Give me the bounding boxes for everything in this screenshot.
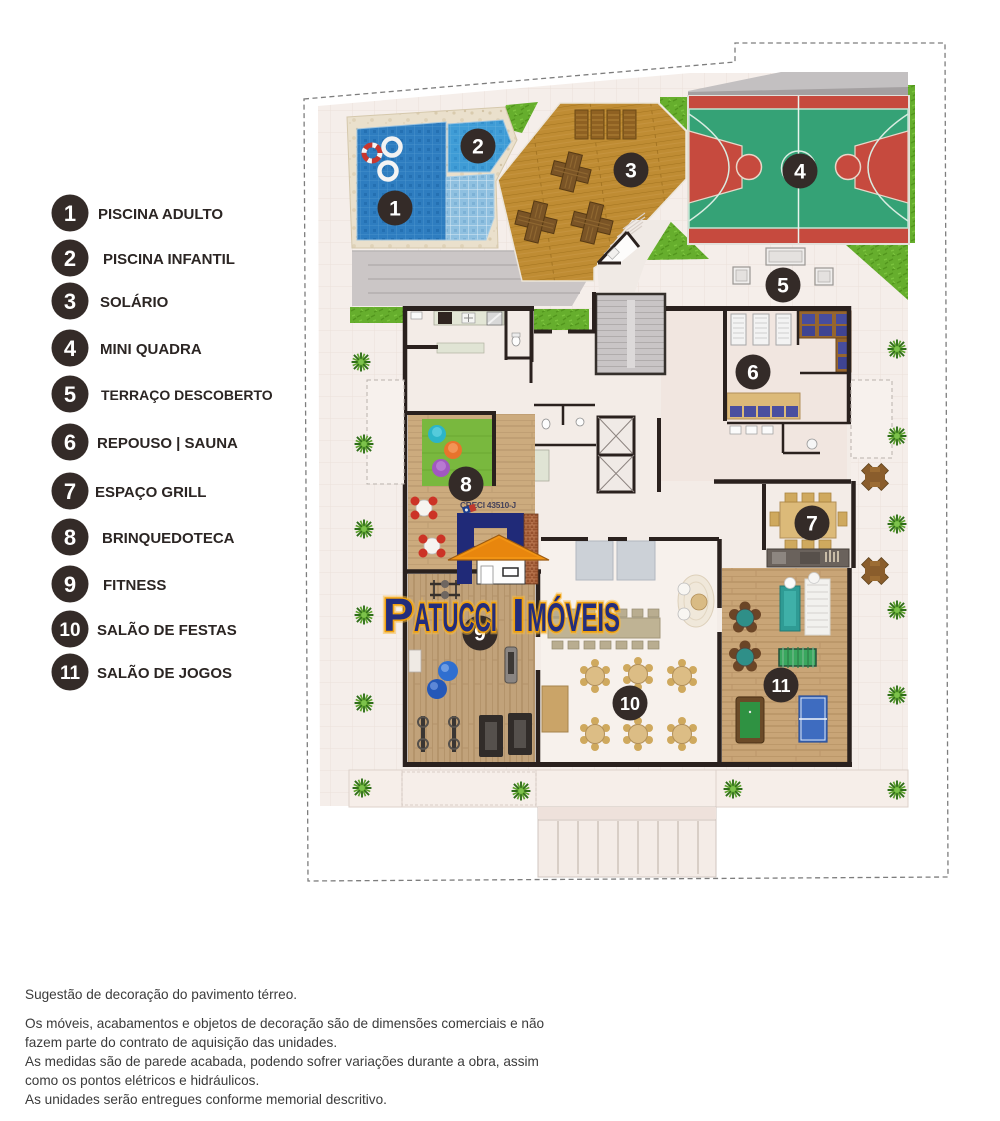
svg-text:6: 6 xyxy=(747,362,759,385)
svg-text:PISCINA INFANTIL: PISCINA INFANTIL xyxy=(103,251,235,268)
svg-text:REPOUSO | SAUNA: REPOUSO | SAUNA xyxy=(97,435,238,452)
svg-text:3: 3 xyxy=(64,289,76,314)
svg-text:PISCINA ADULTO: PISCINA ADULTO xyxy=(98,206,223,223)
svg-text:As unidades serão entregues co: As unidades serão entregues conforme mem… xyxy=(25,1092,387,1107)
svg-text:SALÃO DE FESTAS: SALÃO DE FESTAS xyxy=(97,621,237,639)
svg-text:11: 11 xyxy=(60,663,81,684)
svg-text:5: 5 xyxy=(64,382,76,407)
svg-text:ESPAÇO GRILL: ESPAÇO GRILL xyxy=(95,484,206,501)
svg-text:MINI QUADRA: MINI QUADRA xyxy=(100,341,202,358)
svg-text:7: 7 xyxy=(806,513,818,536)
svg-text:8: 8 xyxy=(460,474,472,497)
svg-text:7: 7 xyxy=(64,479,76,504)
svg-text:ATUCCI: ATUCCI xyxy=(414,596,497,640)
svg-text:8: 8 xyxy=(64,525,76,550)
svg-text:As medidas são de parede acaba: As medidas são de parede acabada, podend… xyxy=(25,1054,539,1069)
svg-text:fazem parte do contrato de aqu: fazem parte do contrato de aquisição das… xyxy=(25,1035,337,1050)
svg-text:2: 2 xyxy=(472,136,484,159)
svg-text:BRINQUEDOTECA: BRINQUEDOTECA xyxy=(102,530,235,547)
svg-text:10: 10 xyxy=(620,694,640,714)
svg-text:4: 4 xyxy=(794,161,806,184)
svg-text:P: P xyxy=(383,589,414,641)
svg-text:2: 2 xyxy=(64,246,76,271)
svg-text:6: 6 xyxy=(64,430,76,455)
svg-text:SOLÁRIO: SOLÁRIO xyxy=(100,294,169,311)
svg-text:Os móveis, acabamentos e objet: Os móveis, acabamentos e objetos de deco… xyxy=(25,1016,544,1031)
svg-text:5: 5 xyxy=(777,275,789,298)
svg-text:1: 1 xyxy=(389,198,401,221)
svg-text:I: I xyxy=(512,589,525,641)
svg-text:1: 1 xyxy=(64,201,76,226)
svg-text:Sugestão de decoração do pavim: Sugestão de decoração do pavimento térre… xyxy=(25,987,297,1002)
svg-text:FITNESS: FITNESS xyxy=(103,577,166,594)
svg-text:TERRAÇO DESCOBERTO: TERRAÇO DESCOBERTO xyxy=(101,387,273,403)
svg-text:MÓVEIS: MÓVEIS xyxy=(527,594,620,640)
svg-text:3: 3 xyxy=(625,160,637,183)
svg-text:10: 10 xyxy=(59,620,80,641)
svg-text:SALÃO DE JOGOS: SALÃO DE JOGOS xyxy=(97,664,232,682)
svg-text:4: 4 xyxy=(64,336,77,361)
svg-text:9: 9 xyxy=(64,572,76,597)
svg-text:11: 11 xyxy=(771,676,790,696)
svg-text:como os pontos elétricos e hid: como os pontos elétricos e hidráulicos. xyxy=(25,1073,259,1088)
